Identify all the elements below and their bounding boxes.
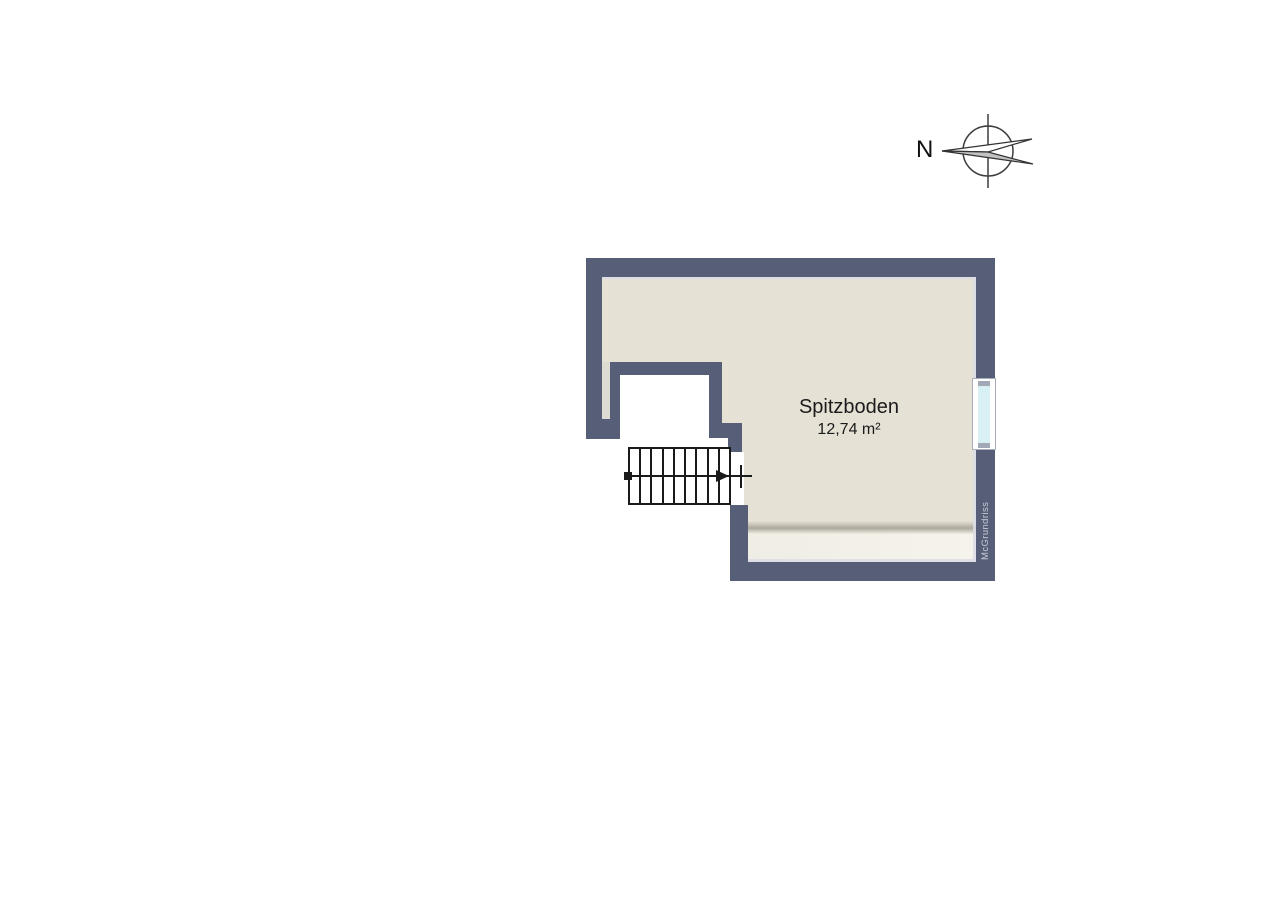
wall-bottom bbox=[730, 562, 995, 581]
wall-lower-left bbox=[730, 505, 748, 562]
wall-top bbox=[586, 258, 995, 277]
wall-step-upper bbox=[709, 423, 742, 438]
wall-stairwell-left bbox=[610, 375, 620, 419]
window-cap-bottom bbox=[978, 443, 990, 448]
compass-needle-upper-blade bbox=[942, 139, 1032, 152]
sloped-ceiling-zone bbox=[744, 534, 976, 562]
room-name: Spitzboden bbox=[753, 396, 945, 419]
window-pane bbox=[978, 386, 990, 443]
room-area: 12,74 m² bbox=[753, 419, 945, 440]
wall-stairwell-right bbox=[709, 375, 722, 423]
wall-stairwell-top bbox=[610, 362, 722, 375]
stair-direction-arrowhead-icon bbox=[716, 470, 729, 482]
wall-left bbox=[586, 258, 602, 439]
room-label: Spitzboden 12,74 m² bbox=[753, 396, 945, 440]
stair-landing-tick bbox=[740, 465, 742, 488]
stair-direction-line bbox=[626, 475, 752, 477]
floor-niche-sliver bbox=[602, 362, 610, 419]
watermark-text: McGrundriss bbox=[976, 500, 995, 562]
wall-left-cap bbox=[586, 419, 620, 439]
floor-main bbox=[602, 277, 976, 362]
floor-plan-page: N bbox=[0, 0, 1280, 905]
sloped-ceiling-shadow bbox=[744, 521, 976, 534]
edge-line-top bbox=[602, 277, 976, 279]
stair-direction-start-dot bbox=[624, 472, 632, 480]
compass-north-icon bbox=[930, 108, 1045, 200]
